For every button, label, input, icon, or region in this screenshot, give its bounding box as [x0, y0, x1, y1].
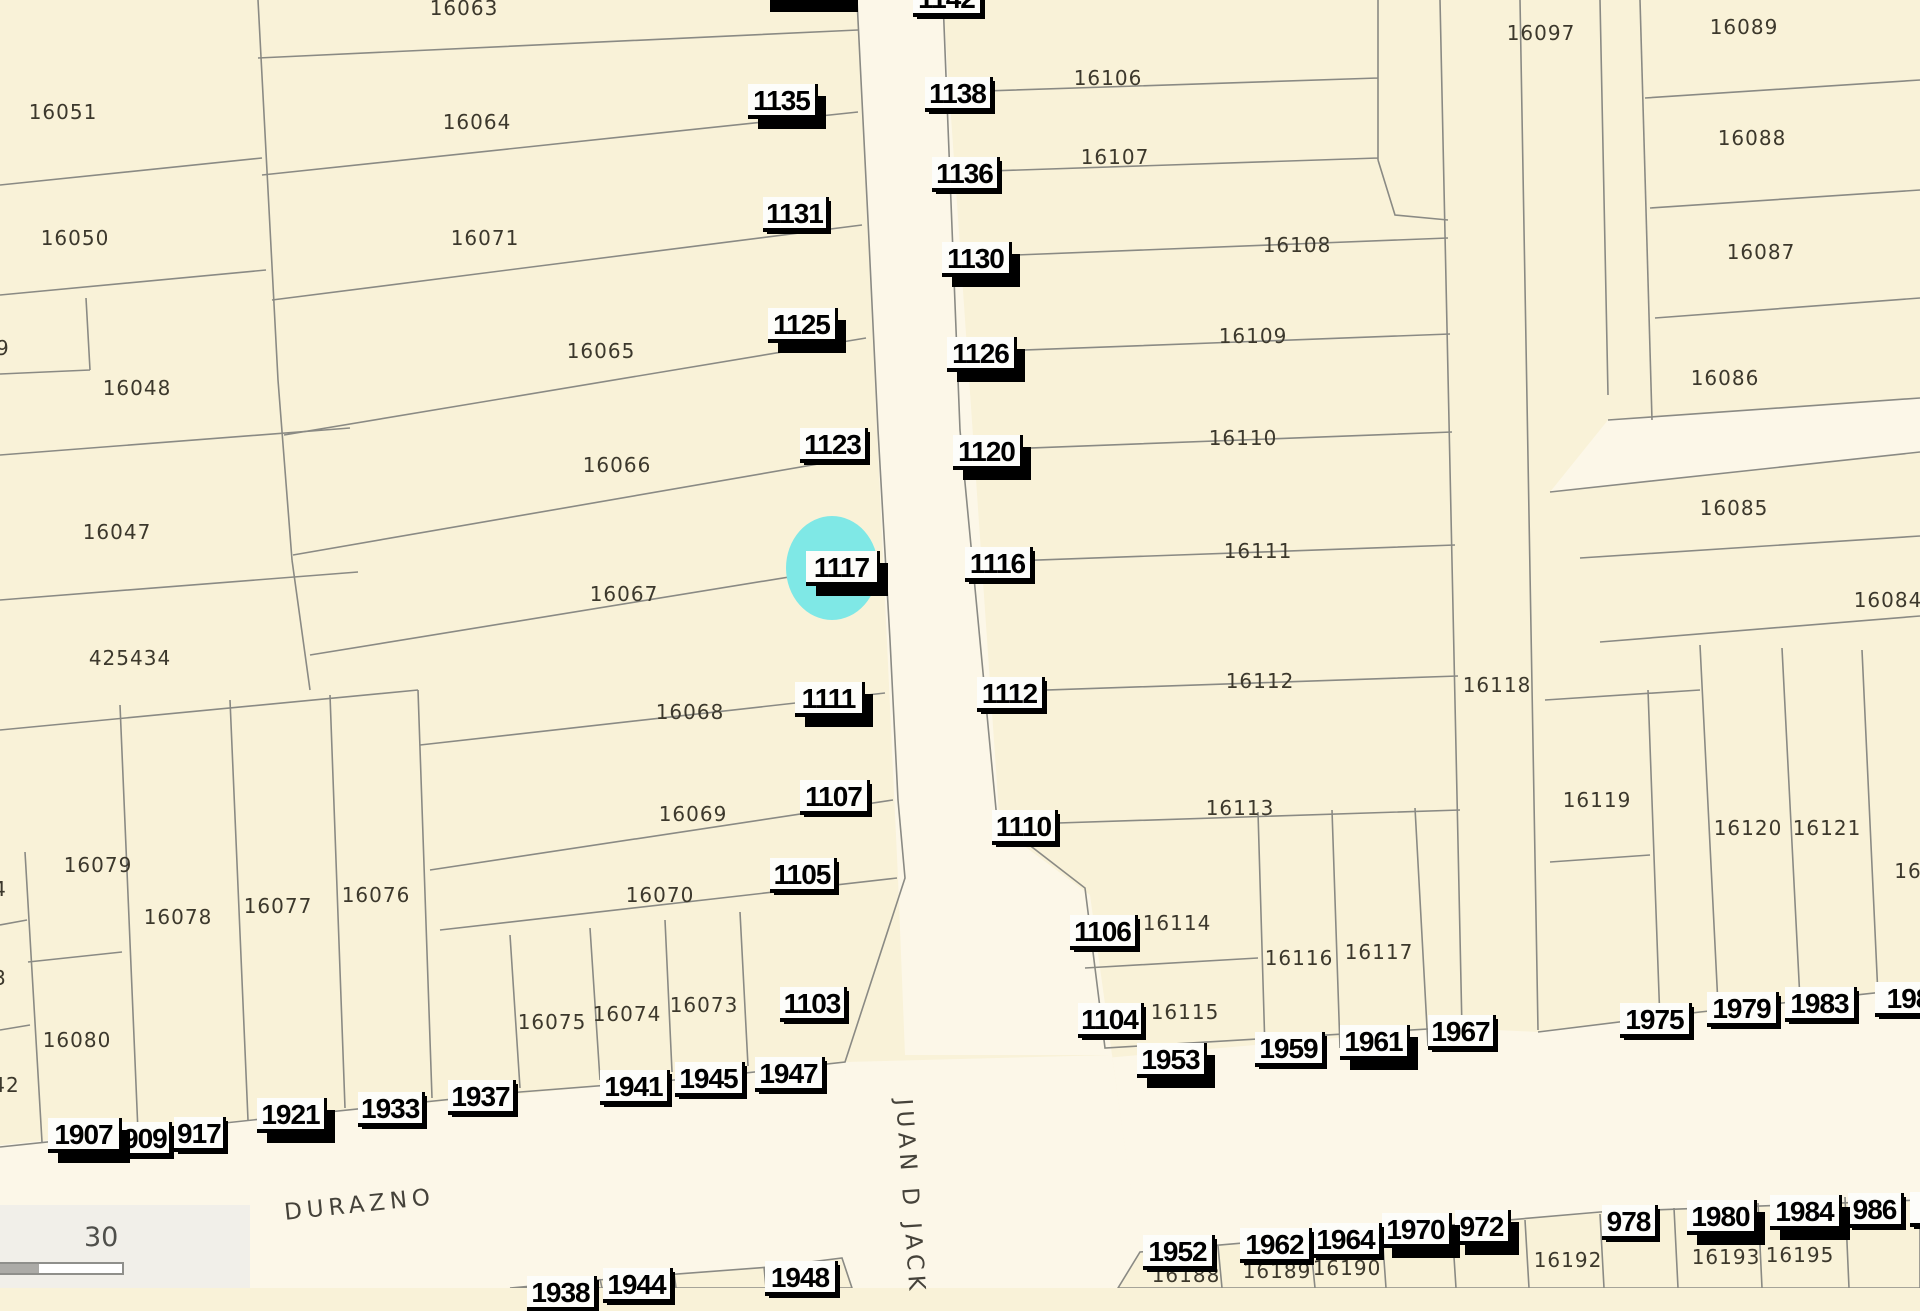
address-label[interactable]: 1123	[800, 428, 868, 463]
parcel-number: 16108	[1263, 233, 1332, 257]
address-label[interactable]: 1945	[675, 1062, 745, 1097]
address-label[interactable]: 1103	[780, 987, 847, 1022]
parcel-number: 16051	[29, 100, 98, 124]
parcel-number: 16114	[1143, 911, 1212, 935]
address-label[interactable]: 1112	[977, 677, 1045, 712]
parcel-number: 16063	[430, 0, 499, 20]
address-label[interactable]: 1941	[600, 1070, 670, 1105]
address-label[interactable]: 1126	[947, 337, 1017, 372]
address-label[interactable]: 1937	[448, 1080, 516, 1115]
parcel-number: 16107	[1081, 145, 1150, 169]
scale-value: 30	[84, 1222, 118, 1253]
address-label[interactable]: 1983	[1785, 987, 1857, 1022]
address-label[interactable]: 1938	[527, 1276, 597, 1311]
parcel-number: 16080	[43, 1028, 112, 1052]
parcel-number: 16073	[670, 993, 739, 1017]
scale-bar-segment	[0, 1264, 39, 1273]
parcel-number: 16106	[1074, 66, 1143, 90]
address-label[interactable]: 1952	[1143, 1235, 1215, 1270]
parcel-number: 16066	[583, 453, 652, 477]
address-label[interactable]: 1117	[806, 551, 880, 586]
clipped-label-fragment	[770, 0, 858, 12]
map-canvas[interactable]: DURAZNO JUAN D JACK 16063160511606416050…	[0, 0, 1920, 1288]
address-label[interactable]: 1135	[748, 84, 818, 119]
parcel-number: 16076	[342, 883, 411, 907]
address-label[interactable]: 1107	[800, 780, 870, 815]
parcel-number: 16088	[1718, 126, 1787, 150]
address-label[interactable]: 1120	[953, 435, 1023, 470]
address-label[interactable]: 19	[1910, 1192, 1920, 1227]
address-label[interactable]: 978	[1602, 1205, 1658, 1240]
parcel-number: 16068	[656, 700, 725, 724]
address-label[interactable]: 1110	[992, 810, 1058, 845]
address-label[interactable]: 1106	[1070, 915, 1138, 950]
parcel-number: 16113	[1206, 796, 1275, 820]
parcel-number: 16089	[1710, 15, 1779, 39]
scale-bar	[0, 1262, 124, 1275]
parcel-number: 16097	[1507, 21, 1576, 45]
parcel-number: 16117	[1345, 940, 1414, 964]
address-label[interactable]: 1142	[913, 0, 983, 17]
address-label[interactable]: 198	[1875, 982, 1920, 1017]
parcel-number: 4	[0, 877, 7, 901]
parcel-number: 16069	[659, 802, 728, 826]
address-label[interactable]: 1967	[1428, 1015, 1496, 1050]
parcel-number: 16079	[64, 853, 133, 877]
parcel-number: 16109	[1219, 324, 1288, 348]
parcel-number: 16112	[1226, 669, 1295, 693]
address-label[interactable]: 1138	[925, 77, 993, 112]
parcel-number: 16087	[1727, 240, 1796, 264]
address-label[interactable]: 1933	[358, 1092, 425, 1127]
address-label[interactable]: 1125	[768, 308, 838, 343]
parcel-number: 16064	[443, 110, 512, 134]
address-label[interactable]: 1975	[1620, 1003, 1692, 1038]
parcel-number: 16115	[1151, 1000, 1220, 1024]
address-label[interactable]: 1111	[795, 682, 865, 717]
parcel-number: 16085	[1700, 496, 1769, 520]
parcel-number: 16193	[1692, 1245, 1761, 1269]
address-label[interactable]: 1131	[763, 197, 829, 232]
address-label[interactable]: 1944	[603, 1268, 673, 1303]
address-label[interactable]: 1964	[1312, 1223, 1382, 1258]
parcel-number: 16048	[103, 376, 172, 400]
parcel-number: 16050	[41, 226, 110, 250]
parcel-number: 16077	[244, 894, 313, 918]
parcel-number: 16047	[83, 520, 152, 544]
parcel-number: 16119	[1563, 788, 1632, 812]
address-label[interactable]: 1948	[765, 1261, 838, 1296]
parcel-number: 16190	[1313, 1256, 1382, 1280]
address-label[interactable]: 1979	[1707, 992, 1779, 1027]
address-label[interactable]: 1961	[1340, 1025, 1410, 1060]
address-label[interactable]: 1962	[1240, 1228, 1312, 1263]
parcel-number: 16	[1894, 859, 1920, 883]
address-label[interactable]: 1921	[257, 1098, 327, 1133]
parcel-number: 16192	[1534, 1248, 1603, 1272]
street-polygons	[0, 0, 1920, 1288]
scale-panel: 30	[0, 1205, 250, 1288]
parcel-number: 16118	[1463, 673, 1532, 697]
parcel-number: 16070	[626, 883, 695, 907]
parcel-number: 16111	[1224, 539, 1293, 563]
address-label[interactable]: 1104	[1078, 1003, 1144, 1038]
address-label[interactable]: 1959	[1255, 1032, 1325, 1067]
address-label[interactable]: 1984	[1770, 1195, 1842, 1230]
address-label[interactable]: 917	[174, 1117, 226, 1152]
address-label[interactable]: 1953	[1137, 1043, 1207, 1078]
parcel-number: 3	[0, 966, 7, 990]
address-label[interactable]: 972	[1455, 1210, 1511, 1245]
address-label[interactable]: 909	[120, 1122, 172, 1157]
parcel-number: 16110	[1209, 426, 1278, 450]
address-label[interactable]: 1116	[965, 547, 1033, 582]
address-label[interactable]: 1907	[48, 1118, 122, 1153]
parcel-number: 49	[0, 336, 10, 360]
address-label[interactable]: 1130	[942, 242, 1012, 277]
address-label[interactable]: 1980	[1687, 1200, 1757, 1235]
address-label[interactable]: 1105	[770, 858, 837, 893]
parcel-number: 16084	[1854, 588, 1920, 612]
parcel-number: 42	[0, 1073, 20, 1097]
parcel-number: 16075	[518, 1010, 587, 1034]
parcel-number: 16067	[590, 582, 659, 606]
parcel-number: 16078	[144, 905, 213, 929]
address-label[interactable]: 1947	[755, 1057, 825, 1092]
parcel-number: 16086	[1691, 366, 1760, 390]
parcel-number: 16120	[1714, 816, 1783, 840]
parcel-number: 16071	[451, 226, 520, 250]
parcel-boundaries-layer	[0, 0, 1920, 1288]
parcel-number: 16116	[1265, 946, 1334, 970]
address-label[interactable]: 986	[1848, 1193, 1904, 1228]
parcel-number: 16121	[1793, 816, 1862, 840]
parcel-number: 16065	[567, 339, 636, 363]
parcel-number: 16195	[1766, 1243, 1835, 1267]
parcel-number: 16074	[593, 1002, 662, 1026]
address-label[interactable]: 1136	[932, 157, 1000, 192]
address-label[interactable]: 1970	[1382, 1213, 1452, 1248]
parcel-number: 425434	[89, 646, 171, 670]
